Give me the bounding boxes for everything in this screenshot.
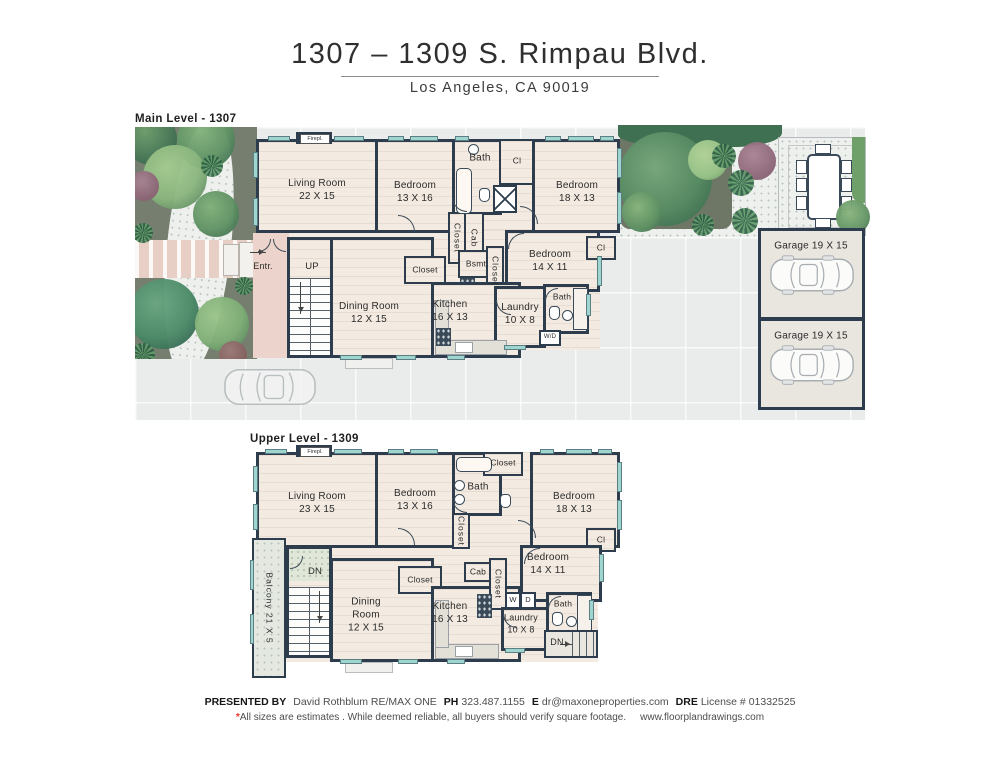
room-name: Living Room (288, 490, 346, 503)
chair (796, 196, 807, 210)
room-dims: 22 X 15 (288, 190, 346, 203)
window (598, 449, 612, 454)
room-dims: 14 X 11 (529, 261, 571, 274)
stair-treads (572, 632, 596, 656)
up-label: UP (305, 261, 319, 273)
room-dims: 13 X 16 (394, 500, 436, 513)
garage-2-label: Garage 19 X 15 (774, 330, 847, 343)
stairs-up-main (287, 237, 333, 358)
room-label-dining-upper: Dining Room 12 X 15 (348, 596, 384, 635)
room-name: Laundry (504, 612, 538, 624)
window (388, 136, 404, 141)
room-dims: 16 X 13 (432, 613, 468, 626)
dryer-label: D (525, 595, 531, 605)
room-name: Living Room (288, 177, 346, 190)
window (334, 136, 364, 141)
chair (841, 160, 852, 174)
window (334, 449, 362, 454)
room-label-bath1-upper: Bath (467, 481, 488, 494)
window (265, 449, 287, 454)
window (447, 355, 465, 360)
upper-level-label: Upper Level - 1309 (250, 433, 359, 445)
chair (841, 178, 852, 192)
room-label-cl-upper: Cl (597, 534, 605, 545)
room-dims: 16 X 13 (432, 311, 468, 324)
dn-right-label: DN (550, 637, 563, 649)
fireplace-label: Firepl. (300, 134, 330, 144)
stove (436, 328, 451, 346)
window (505, 648, 525, 653)
window (410, 136, 438, 141)
room-label-cl2-main: Cl (597, 242, 605, 253)
window (396, 355, 416, 360)
room-name: Bedroom (394, 487, 436, 500)
room-label-laundry-upper: Laundry 10 X 8 (504, 612, 538, 635)
room-dims: 23 X 15 (288, 503, 346, 516)
email-address: dr@maxoneproperties.com (542, 696, 669, 708)
room-label-bedroom2-upper: Bedroom 18 X 13 (553, 490, 595, 516)
palm-plant (692, 214, 714, 236)
stair-down-arrow-icon (300, 282, 301, 314)
palm-plant (732, 208, 758, 234)
toilet (552, 612, 563, 626)
shrub (219, 341, 247, 359)
window (589, 600, 594, 620)
stair-down-arrow-icon (319, 591, 320, 623)
fireplace-label: Firepl. (300, 447, 330, 457)
room-label-bedroom1-upper: Bedroom 13 X 16 (394, 487, 436, 513)
room-label-bsmt-main: Bsmt (466, 258, 486, 269)
room-name: Kitchen (432, 600, 468, 613)
window (268, 136, 290, 141)
room-label-cab-main: Cab (468, 229, 479, 248)
phone-label: PH (444, 696, 459, 708)
toilet (500, 494, 511, 508)
balcony-label: Balcony 21 X 5 (263, 572, 274, 643)
phone-number: 323.487.1155 (461, 696, 524, 708)
room-name: Dining (348, 596, 384, 609)
room-label-bedroom3-main: Bedroom 14 X 11 (529, 248, 571, 274)
car-top-view (222, 364, 318, 410)
window (599, 554, 604, 582)
window (340, 659, 362, 664)
room-dims: 12 X 15 (348, 622, 384, 635)
window (340, 355, 362, 360)
room-label-kitchen-upper: Kitchen 16 X 13 (432, 600, 468, 626)
page-title: 1307 – 1309 S. Rimpau Blvd. (0, 38, 1000, 71)
footer-line1: PRESENTED BYDavid Rothblum RE/MAX ONEPH3… (0, 696, 1000, 708)
sink (454, 480, 465, 491)
room-name: Bedroom (527, 551, 569, 564)
dre-number: License # 01332525 (701, 696, 796, 708)
chair (815, 218, 831, 228)
tree (193, 191, 239, 237)
room-label-dining-main: Dining Room 12 X 15 (339, 300, 399, 326)
window (250, 614, 254, 644)
footer-line2: *All sizes are estimates . While deemed … (0, 712, 1000, 723)
disclaimer-text: All sizes are estimates . While deemed r… (240, 712, 626, 723)
shrub (622, 192, 662, 232)
window (566, 449, 592, 454)
toilet (549, 306, 560, 320)
palm-plant (712, 144, 736, 168)
window (398, 659, 418, 664)
stair-divider (309, 587, 310, 655)
stove (477, 594, 492, 618)
room-label-closet-hall-upper: Closet (455, 516, 466, 546)
lawn-strip (852, 137, 865, 203)
window (504, 345, 526, 350)
room-name: Kitchen (432, 298, 468, 311)
room-label-kitchen-main: Kitchen 16 X 13 (432, 298, 468, 324)
agent-name: David Rothblum RE/MAX ONE (293, 696, 437, 708)
room-name: Bedroom (394, 179, 436, 192)
kitchen-sink (455, 646, 473, 657)
shaft (493, 185, 517, 213)
room-label-closet-hall-main: Closet (451, 223, 462, 253)
room-label-closet-bsmt-main: Closet (489, 256, 500, 286)
sink (566, 616, 577, 627)
palm-plant (201, 155, 223, 177)
floor-plan-page: 1307 – 1309 S. Rimpau Blvd. Los Angeles,… (0, 0, 1000, 773)
room-name: Bedroom (553, 490, 595, 503)
room-label-bedroom2-main: Bedroom 18 X 13 (556, 179, 598, 205)
window (388, 449, 404, 454)
room-label-cab-upper: Cab (470, 566, 486, 577)
window (617, 462, 622, 492)
outdoor-table (807, 154, 841, 220)
entry-label: Entr. (253, 261, 273, 273)
chair (815, 144, 831, 154)
window (568, 136, 594, 141)
window (447, 659, 465, 664)
garage-1-label: Garage 19 X 15 (774, 240, 847, 253)
window (455, 136, 469, 141)
email-label: E (532, 696, 539, 708)
window (410, 449, 438, 454)
bathtub (456, 457, 492, 472)
room-label-bedroom1-main: Bedroom 13 X 16 (394, 179, 436, 205)
room-dims: 18 X 13 (553, 503, 595, 516)
chair (796, 178, 807, 192)
presented-by-label: PRESENTED BY (205, 696, 287, 708)
room-dims: 13 X 16 (394, 192, 436, 205)
room-name: Dining Room (339, 300, 399, 313)
room-dims: 18 X 13 (556, 192, 598, 205)
washer-label: W (509, 595, 516, 605)
window (253, 152, 258, 178)
room-name: Room (348, 609, 384, 622)
window (617, 192, 622, 224)
room-label-living-upper: Living Room 23 X 15 (288, 490, 346, 516)
sink (562, 310, 573, 321)
room-label-bath2-main: Bath (553, 291, 571, 302)
car-top-view (768, 344, 856, 386)
room-label-bedroom3-upper: Bedroom 14 X 11 (527, 551, 569, 577)
palm-plant (728, 170, 754, 196)
window (597, 256, 602, 286)
room-dims: 12 X 15 (339, 313, 399, 326)
stair-divider (310, 278, 311, 355)
window (617, 148, 622, 178)
title-divider (341, 76, 659, 77)
window (253, 504, 258, 530)
room-label-closet-mid-upper: Closet (407, 574, 432, 585)
main-level-label: Main Level - 1307 (135, 113, 236, 125)
room-dims: 10 X 8 (501, 314, 539, 327)
room-name: Bedroom (556, 179, 598, 192)
room-label-closet-top-upper: Closet (490, 457, 515, 468)
window (545, 136, 561, 141)
walkway-slab (223, 244, 239, 276)
room-name: Bedroom (529, 248, 571, 261)
window (617, 500, 622, 530)
toilet (479, 188, 490, 202)
kitchen-sink (455, 342, 473, 353)
room-label-closet-laundry-upper: Closet (492, 569, 503, 599)
chair (796, 160, 807, 174)
palm-plant (235, 277, 253, 295)
room-label-living-main: Living Room 22 X 15 (288, 177, 346, 203)
room-label-closet-mid-main: Closet (412, 264, 437, 275)
window (586, 294, 591, 316)
window (540, 449, 554, 454)
window (250, 560, 254, 590)
room-dims: 14 X 11 (527, 564, 569, 577)
window (600, 136, 614, 141)
car-top-view (768, 254, 856, 296)
room-name: Laundry (501, 301, 539, 314)
window (253, 198, 258, 226)
entry-arrow-icon (250, 252, 266, 253)
room-label-laundry-main: Laundry 10 X 8 (501, 301, 539, 327)
dre-label: DRE (676, 696, 698, 708)
room-label-bath1-main: Bath (469, 152, 490, 165)
window (253, 466, 258, 492)
wd-label-main: W/D (544, 334, 556, 342)
room-label-bath2-upper: Bath (554, 598, 572, 609)
room-dims: 10 X 8 (504, 624, 538, 636)
room-label-cl1-main: Cl (513, 155, 521, 166)
dn-left-label: DN (308, 566, 322, 578)
page-subtitle: Los Angeles, CA 90019 (0, 80, 1000, 96)
website-url: www.floorplandrawings.com (640, 712, 764, 723)
front-garden (135, 127, 257, 359)
